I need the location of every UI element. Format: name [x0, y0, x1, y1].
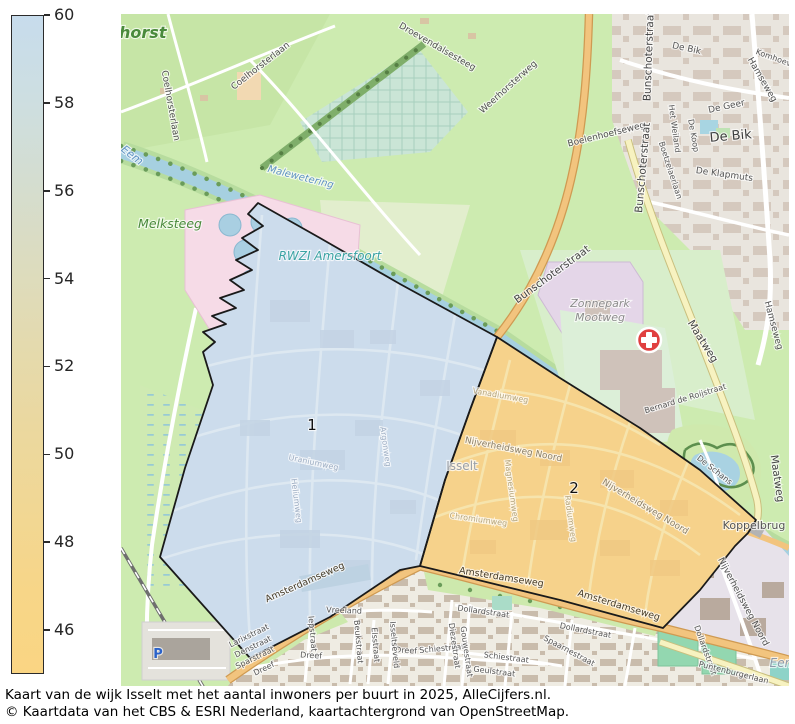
map-label: RWZI Amersfoort — [279, 249, 383, 263]
figure: 6058565452504846 — [0, 0, 795, 724]
map-label: Mootweg — [575, 311, 625, 324]
map-label: Koppelbrug — [723, 519, 786, 532]
map-canvas: lhorstMelksteegEemMaleweteringRWZI Amers… — [0, 0, 795, 724]
map-label: Isselt — [446, 459, 478, 473]
map-label: Dreef — [300, 650, 323, 660]
map-label: Eem — [770, 656, 795, 670]
hospital-icon — [637, 328, 661, 352]
map-label: Vreeland — [326, 605, 362, 615]
caption-title: Kaart van de wijk Isselt met het aantal … — [5, 687, 569, 704]
map-label: Zonnepark — [569, 297, 630, 310]
caption: Kaart van de wijk Isselt met het aantal … — [5, 687, 569, 722]
region-label: 1 — [307, 416, 317, 434]
map-label: Melksteeg — [138, 216, 202, 231]
map-label: P — [153, 647, 163, 662]
caption-attribution: © Kaartdata van het CBS & ESRI Nederland… — [5, 704, 569, 721]
map-label: lhorst — [114, 23, 168, 42]
